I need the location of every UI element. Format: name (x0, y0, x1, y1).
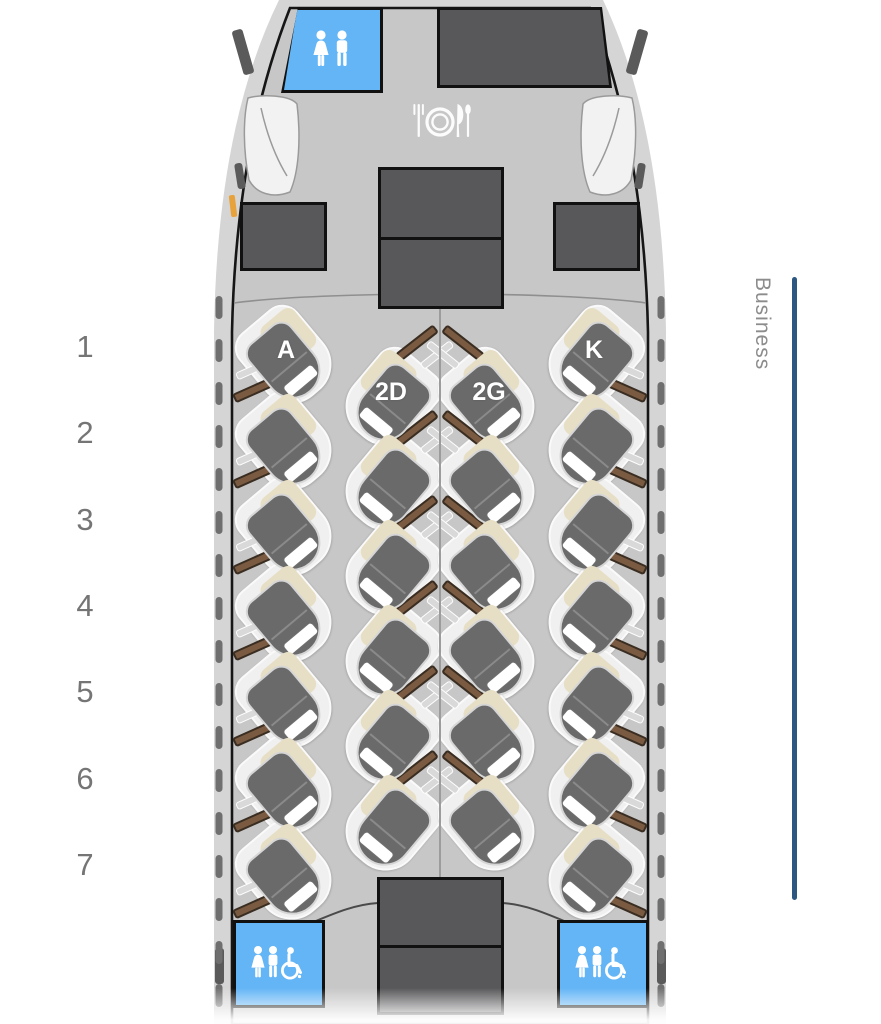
business-section-line (792, 277, 797, 900)
cabin-window (658, 339, 665, 362)
cabin-window (216, 597, 223, 620)
cabin-window (658, 726, 665, 749)
galley-divider (377, 945, 504, 948)
man-icon (269, 946, 278, 977)
woman-icon (251, 946, 264, 977)
cabin-window (216, 812, 223, 835)
row-number-7: 7 (62, 848, 108, 882)
woman-icon (313, 30, 328, 66)
man-woman-icon (307, 29, 357, 71)
cabin-window (658, 554, 665, 577)
cabin-window (658, 597, 665, 620)
business-section-label: Business (750, 277, 774, 370)
bottom-fade (0, 988, 881, 1024)
cabin-window (216, 640, 223, 663)
man-icon (337, 30, 347, 66)
woman-icon (575, 946, 588, 977)
cabin-window (658, 296, 665, 319)
cabin-window (658, 511, 665, 534)
restaurant-icon (404, 100, 476, 144)
seat-map-page: AK2D2G (0, 0, 881, 1024)
row-number-4: 4 (62, 589, 108, 623)
row-number-2: 2 (62, 416, 108, 450)
cabin-window (216, 425, 223, 448)
cabin-window (216, 554, 223, 577)
cabin-window (216, 296, 223, 319)
row-number-1: 1 (62, 330, 108, 364)
accessible-lavatory-icon (249, 945, 309, 983)
cabin-window (216, 511, 223, 534)
center-aisle-divider (439, 309, 441, 877)
row-number-3: 3 (62, 503, 108, 537)
wheelchair-icon (282, 947, 301, 978)
cabin-window (658, 769, 665, 792)
cabin-window (216, 683, 223, 706)
cabin-window (658, 425, 665, 448)
cabin-window (216, 941, 223, 964)
man-icon (593, 946, 602, 977)
cabin-window (658, 898, 665, 921)
cabin-window (658, 382, 665, 405)
right-closet (553, 202, 640, 271)
cabin-window (658, 683, 665, 706)
cabin-window (216, 726, 223, 749)
monument-divider (378, 237, 504, 240)
row-number-6: 6 (62, 762, 108, 796)
door-marker (231, 28, 254, 75)
entry-door-left (244, 96, 299, 195)
cabin-window (658, 468, 665, 491)
cabin-window (216, 855, 223, 878)
cabin-window (216, 468, 223, 491)
accessible-lavatory-icon (573, 945, 633, 983)
wheelchair-icon (606, 947, 625, 978)
cabin-window (216, 898, 223, 921)
door-marker (625, 28, 648, 75)
cabin-window (216, 339, 223, 362)
entry-door-right (581, 96, 636, 195)
front-lavatory (281, 7, 383, 93)
left-closet (240, 202, 327, 271)
cabin-window (216, 382, 223, 405)
front-center-monument (378, 167, 504, 309)
front-galley (437, 7, 612, 88)
cabin-window (216, 769, 223, 792)
front-lavatory-panel (284, 10, 380, 90)
row-number-5: 5 (62, 675, 108, 709)
cabin-window (658, 855, 665, 878)
cabin-window (658, 812, 665, 835)
front-galley-panel (440, 10, 609, 85)
cabin-window (658, 941, 665, 964)
cabin-window (658, 640, 665, 663)
